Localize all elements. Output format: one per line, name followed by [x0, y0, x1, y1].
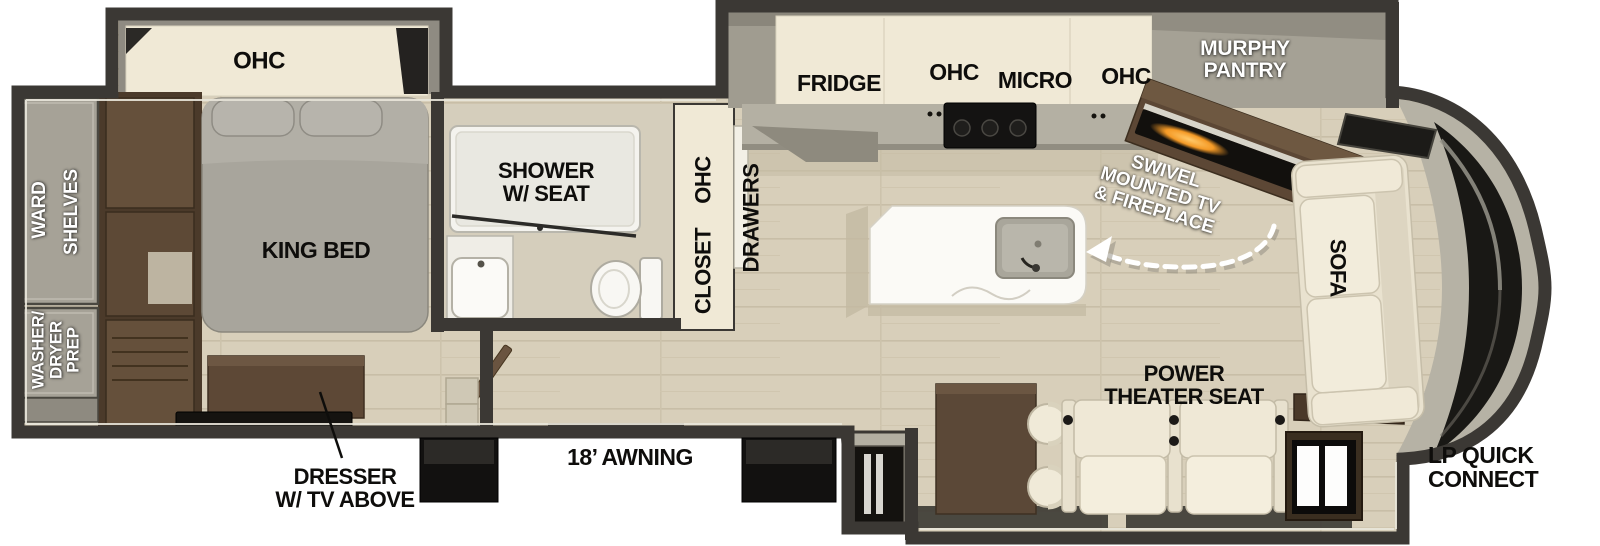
label-dresser: DRESSER W/ TV ABOVE: [275, 466, 414, 512]
cupholder: [1275, 415, 1285, 425]
label-line: W/ SEAT: [498, 183, 594, 206]
label-washer-dryer-prep: WASHER/ DRYER PREP: [29, 311, 82, 389]
label-line: WASHER/: [29, 311, 47, 389]
theater-seat-2-cushion: [1186, 456, 1272, 514]
label-line: THEATER SEAT: [1104, 386, 1263, 409]
label-sofa: SOFA: [1326, 239, 1349, 297]
label-line: PANTRY: [1200, 60, 1290, 82]
rear-counter: [16, 398, 98, 422]
sofa-armrest-top: [1295, 159, 1403, 198]
label-drawers: DRAWERS: [741, 164, 764, 273]
label-shelves: SHELVES: [62, 169, 82, 255]
label-lp-quick-connect: LP QUICK CONNECT: [1428, 444, 1538, 492]
label-line: DRESSER: [275, 466, 414, 489]
bedroom-steps: [446, 378, 478, 430]
dinette-table: [936, 384, 1036, 514]
label-line: POWER: [1104, 363, 1263, 386]
entry-step-bedroom: [420, 438, 498, 502]
bath-bottom-wall: [431, 318, 681, 331]
island-sink: [996, 218, 1074, 278]
rear-living-window: [1286, 432, 1362, 520]
door-window-pane: [864, 454, 871, 514]
label-kitchen-ohc-right: OHC: [1101, 65, 1151, 89]
cupholder: [1169, 415, 1179, 425]
bathroom-vanity-sink: [447, 236, 513, 322]
sofa-cushion-2: [1306, 294, 1386, 393]
label-closet-ohc: OHC: [693, 156, 716, 203]
bedroom-divider-wall: [480, 331, 493, 432]
pillow-right: [300, 100, 382, 136]
kitchen-island: [846, 206, 1086, 318]
theater-seat-1-cushion: [1080, 456, 1166, 514]
label-line: LP QUICK: [1428, 444, 1538, 468]
sofa: [1291, 154, 1425, 427]
label-line: DRYER: [47, 311, 65, 389]
toilet: [591, 258, 662, 320]
wardrobe-cabinetry: [98, 92, 202, 432]
label-murphy-pantry: MURPHY PANTRY: [1200, 38, 1290, 82]
entry-step-main: [742, 438, 836, 502]
label-line: MURPHY: [1200, 38, 1290, 60]
door-window-pane: [876, 454, 883, 514]
label-power-theater-seat: POWER THEATER SEAT: [1104, 363, 1263, 409]
label-line: SHOWER: [498, 160, 594, 183]
label-king-bed: KING BED: [262, 239, 370, 263]
shower-door-handle: [537, 225, 543, 231]
label-closet: CLOSET: [693, 228, 716, 314]
label-fridge: FRIDGE: [797, 72, 881, 96]
sink-drain: [1035, 241, 1042, 248]
label-awning: 18’ AWNING: [567, 446, 693, 470]
label-line: PREP: [65, 311, 83, 389]
cooktop: [944, 103, 1036, 148]
wardrobe-mirror: [148, 252, 192, 304]
label-line: CONNECT: [1428, 468, 1538, 492]
bath-left-wall: [431, 92, 444, 332]
label-shower: SHOWER W/ SEAT: [498, 160, 594, 206]
cupholder: [1063, 415, 1073, 425]
vanity-faucet: [478, 261, 485, 268]
cupholder: [1169, 436, 1179, 446]
label-kitchen-ohc-left: OHC: [929, 61, 979, 85]
label-micro: MICRO: [998, 69, 1072, 93]
rv-floorplan: OHC KING BED WARD SHELVES WASHER/ DRYER …: [0, 0, 1600, 546]
label-line: W/ TV ABOVE: [275, 489, 414, 512]
label-bedroom-ohc: OHC: [233, 50, 285, 75]
king-bed: [202, 98, 428, 332]
pillow-left: [212, 100, 294, 136]
theater-seats: [1062, 400, 1288, 514]
label-ward: WARD: [30, 181, 50, 238]
